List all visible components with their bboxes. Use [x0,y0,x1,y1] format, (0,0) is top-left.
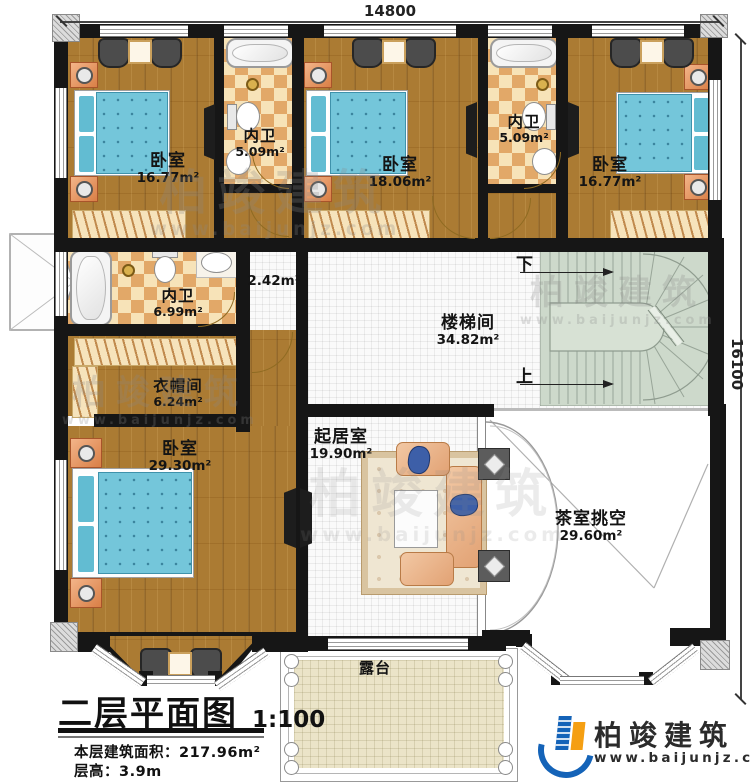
wall-stair-right [708,238,724,416]
sink [201,252,232,273]
floor-area-label: 本层建筑面积： [74,745,179,761]
tv [300,488,312,548]
window [55,88,67,178]
line-stair-tea-boundary [494,408,712,411]
nightstand [70,62,98,88]
room-area: 16.77m² [137,171,200,187]
railing-post [284,654,299,669]
cloak-rack [72,366,98,418]
wardrobe [610,210,712,240]
room-area: 19.90m² [310,447,373,463]
room-area: 6.99m² [153,305,202,319]
coffee-table [394,490,438,548]
tv [466,102,477,158]
bed-pillow [309,134,328,174]
room-area: 29.60m² [560,529,623,545]
side-table [478,448,510,480]
window [224,25,288,37]
cloak-rack [74,338,240,366]
room-name: 衣帽间 [153,378,203,395]
terrace-door [328,638,468,650]
window-table [382,40,406,64]
dimension-depth: 16100 [728,338,746,390]
window [709,80,721,200]
bay-window [147,675,215,686]
floor-plan: 下 上 [0,0,750,784]
room-label-bedroom-master: 卧室 29.30m² [130,440,230,474]
window [324,25,456,37]
room-label-bath-top-right: 内卫 5.09m² [484,114,564,145]
railing-post [498,672,513,687]
window-chair [662,38,694,68]
floor-height-label: 层高： [74,764,119,780]
bay-corner [254,634,270,647]
room-area: 29.30m² [149,459,212,475]
sofa [400,552,454,586]
bathtub [490,38,558,68]
room-name: 卧室 [382,156,418,175]
nightstand [304,62,332,88]
wall-tea-right [710,404,726,642]
room-name: 露台 [359,660,391,677]
wall-bathmid-bottom [54,324,246,336]
room-area: 18.06m² [369,175,432,191]
wall-cloak-bottom [94,414,244,427]
window-table [640,40,664,64]
room-name: 茶室挑空 [555,510,627,529]
floor-height-value: 3.9m [119,764,162,780]
nightstand [70,176,98,202]
room-label-bedroom-top-middle: 卧室 18.06m² [350,156,450,190]
window [55,252,67,316]
nightstand [304,176,332,202]
toilet [154,256,176,283]
window-chair [150,38,182,68]
window [488,25,552,37]
bed-pillow [76,524,96,574]
room-name: 楼梯间 [441,314,495,333]
bay-corner [674,632,690,645]
wall-stairhall-bottom [296,404,494,417]
corner-column [700,640,730,670]
wardrobe [72,210,186,240]
wall-bath2-bottom [478,184,568,193]
title-underline-thin [58,736,264,738]
stairs-up-arrow [520,384,612,385]
bed-pillow [309,94,328,134]
bed-pillow [77,94,96,134]
room-label-bedroom-top-left: 卧室 16.77m² [118,152,218,186]
shower-knob [122,264,135,277]
railing-post [284,672,299,687]
room-area: 16.77m² [579,175,642,191]
tv [284,488,296,548]
floor-hallway [248,248,298,332]
window-chair [98,38,130,68]
bed-pillow [77,134,96,174]
room-area: 34.82m² [437,333,500,349]
room-name: 起居室 [314,428,368,447]
title-underline [58,728,264,733]
room-name: 内卫 [507,114,540,131]
floor-area-row: 本层建筑面积：217.96m² [74,741,260,762]
nightstand [70,578,102,608]
railing-post [284,742,299,757]
corner-column [52,14,80,42]
bathtub [70,250,112,326]
room-label-bath-middle: 内卫 6.99m² [138,288,218,319]
room-label-cloakroom: 衣帽间 6.24m² [128,378,228,409]
railing-post [498,654,513,669]
railing-post [284,760,299,775]
window-chair [352,38,384,68]
shower-knob [246,78,259,91]
corner-column [50,622,78,652]
room-name: 内卫 [161,288,194,305]
nightstand [70,438,102,468]
room-label-hallway: 2.42m² [238,274,310,290]
stairs-down-arrow [520,272,612,273]
floor-height-row: 层高：3.9m [74,760,162,781]
room-label-tea-void: 茶室挑空 29.60m² [536,510,646,544]
room-name: 内卫 [243,128,276,145]
railing-post [498,760,513,775]
wardrobe [308,210,430,240]
room-label-stairwell: 楼梯间 34.82m² [412,314,524,348]
window-chair [404,38,436,68]
brand-website: www.baijunjz.com [594,750,750,766]
shower-knob [536,78,549,91]
window [55,460,67,570]
floor-area-value: 217.96m² [179,745,260,761]
dimension-width: 14800 [350,2,430,20]
window-chair [610,38,642,68]
wall-row1-bottom [54,238,722,252]
bathtub [226,38,294,68]
room-label-terrace: 露台 [345,660,405,677]
room-area: 5.09m² [235,145,284,159]
room-label-bath-top-left: 内卫 5.09m² [220,128,300,159]
room-area: 5.09m² [499,131,548,145]
room-name: 卧室 [162,440,198,459]
room-name: 卧室 [592,156,628,175]
room-label-bedroom-top-right: 卧室 16.77m² [560,156,660,190]
tv [568,102,579,158]
room-area: 6.24m² [153,395,202,409]
brand-name: 柏竣建筑 [594,714,734,754]
room-label-living-room: 起居室 19.90m² [291,428,391,462]
window [100,25,188,37]
room-area: 2.42m² [247,274,300,290]
bay-window [560,676,644,687]
bed-mattress [98,472,192,574]
dimension-line-top [60,21,720,23]
side-table [478,550,510,582]
wall-bath1-bottom [214,184,304,193]
wall-hallway-left [236,240,250,432]
bed-pillow [76,474,96,524]
railing-post [498,742,513,757]
window [592,25,684,37]
window-table [168,652,192,676]
room-name: 卧室 [150,152,186,171]
window-table [128,40,152,64]
